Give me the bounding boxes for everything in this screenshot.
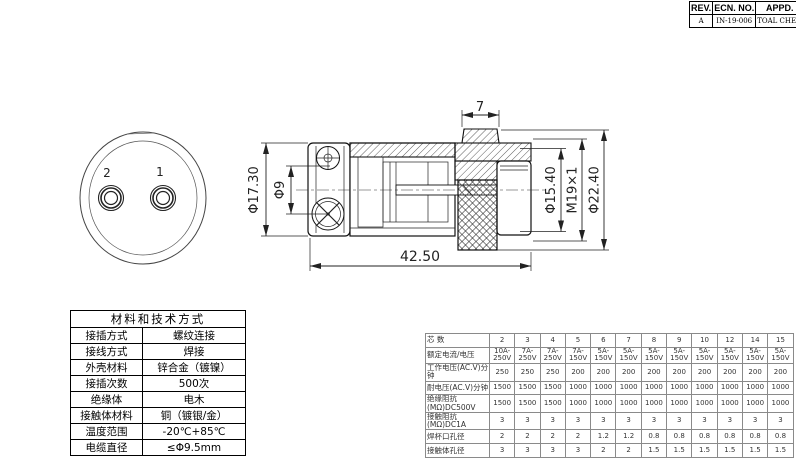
svg-text:7: 7 [476,100,484,115]
spec-row: 工作电压(AC.V)分钟2502502502002002002002002002… [426,364,794,382]
spec-row-label: 芯 数 [426,334,490,348]
spec-value: 200 [591,364,616,382]
spec-value: 12 [717,334,742,348]
spec-value: 1500 [540,381,565,395]
spec-value: 3 [692,412,717,430]
spec-value: 0.8 [667,430,692,444]
pin-1 [151,186,176,211]
spec-row: 绝缘阻抗(MΩ)DC500V15001500150010001000100010… [426,395,794,413]
spec-value: 1000 [717,381,742,395]
spec-value: 1000 [616,395,641,413]
revision-header-row: REV. ECN. NO. APPD. [690,2,796,15]
spec-row: 耐电压(AC.V)分钟15001500150010001000100010001… [426,381,794,395]
spec-value: 2 [540,430,565,444]
dim-tab-width: 7 [462,100,499,127]
spec-value: 0.8 [717,430,742,444]
materials-table: 材料和技术方式 接插方式螺纹连接接线方式焊接外壳材料锌合金（镀镍）接插次数500… [70,310,246,456]
spec-value: 8 [641,334,666,348]
spec-value: 1000 [616,381,641,395]
svg-text:Φ17.30: Φ17.30 [247,166,262,213]
spec-value: 7A-150V [565,347,590,363]
spec-value: 200 [692,364,717,382]
spec-value: 1000 [641,381,666,395]
spec-value: 250 [490,364,515,382]
spec-value: 1.2 [591,430,616,444]
materials-property-value: -20℃+85℃ [143,424,246,440]
materials-property-label: 电缆直径 [71,440,143,456]
spec-value: 1000 [692,381,717,395]
spec-value: 4 [540,334,565,348]
spec-row: 接触阻抗(MΩ)DC1A333333333333 [426,412,794,430]
materials-row: 电缆直径≤Φ9.5mm [71,440,246,456]
spec-value: 3 [540,444,565,458]
spec-value: 3 [565,412,590,430]
spec-value: 1.5 [742,444,767,458]
spec-value: 1.5 [717,444,742,458]
pin-2-label: 2 [103,166,111,180]
spec-value: 5A-150V [768,347,793,363]
svg-text:Φ15.40: Φ15.40 [544,166,559,213]
spec-value: 3 [565,444,590,458]
spec-value: 200 [641,364,666,382]
front-inner-shell [89,141,197,255]
spec-value: 3 [616,412,641,430]
spec-value: 0.8 [768,430,793,444]
spec-row-label: 绝缘阻抗(MΩ)DC500V [426,395,490,413]
materials-property-value: 螺纹连接 [143,328,246,344]
spec-row-label: 耐电压(AC.V)分钟 [426,381,490,395]
spec-value: 1500 [490,395,515,413]
spec-value: 0.8 [742,430,767,444]
materials-property-label: 接线方式 [71,344,143,360]
spec-value: 2 [515,430,540,444]
spec-value: 1000 [768,395,793,413]
spec-value: 3 [515,444,540,458]
pin-1-label: 1 [156,165,164,179]
spec-value: 3 [540,412,565,430]
spec-table: 芯 数2345678910121415额定电流/电压10A-250V7A-250… [425,333,794,458]
spec-value: 6 [591,334,616,348]
svg-text:42.50: 42.50 [400,249,440,265]
spec-value: 1000 [667,381,692,395]
ecn-no-value: IN-19-006 [713,15,756,28]
spec-value: 2 [490,430,515,444]
materials-property-label: 温度范围 [71,424,143,440]
spec-value: 5A-150V [742,347,767,363]
spec-value: 3 [515,412,540,430]
drawing-canvas: REV. ECN. NO. APPD. A IN-19-006 TOAL CHE… [0,0,796,460]
spec-value: 3 [515,334,540,348]
spec-value: 1500 [515,395,540,413]
spec-value: 200 [768,364,793,382]
materials-property-label: 绝缘体 [71,392,143,408]
spec-value: 3 [768,412,793,430]
materials-row: 绝缘体电木 [71,392,246,408]
spec-value: 15 [768,334,793,348]
spec-value: 3 [490,444,515,458]
spec-value: 3 [717,412,742,430]
spec-value: 3 [641,412,666,430]
spec-row-label: 工作电压(AC.V)分钟 [426,364,490,382]
spec-value: 1000 [641,395,666,413]
materials-property-value: 500次 [143,376,246,392]
materials-property-value: 锌合金（镀镍） [143,360,246,376]
spec-value: 1000 [768,381,793,395]
spec-value: 1.5 [692,444,717,458]
side-view-drawing: Φ17.30 Φ9 Φ15.40 M19×1 Φ22.4 [235,85,615,280]
spec-row: 芯 数2345678910121415 [426,334,794,348]
spec-value: 3 [591,412,616,430]
spec-value: 1.5 [667,444,692,458]
spec-value: 1000 [717,395,742,413]
materials-property-label: 接触体材料 [71,408,143,424]
spec-value: 5A-150V [667,347,692,363]
spec-row-label: 接触阻抗(MΩ)DC1A [426,412,490,430]
spec-value: 3 [490,412,515,430]
spec-value: 5A-150V [616,347,641,363]
spec-value: 5A-150V [717,347,742,363]
spec-value: 1.2 [616,430,641,444]
spec-value: 200 [742,364,767,382]
rev-header: REV. [690,2,713,15]
spec-value: 200 [616,364,641,382]
materials-row: 外壳材料锌合金（镀镍） [71,360,246,376]
spec-row: 接触体孔径3333221.51.51.51.51.51.5 [426,444,794,458]
materials-property-label: 接插方式 [71,328,143,344]
materials-property-label: 接插次数 [71,376,143,392]
spec-value: 250 [540,364,565,382]
spec-value: 5 [565,334,590,348]
ecn-no-header: ECN. NO. [713,2,756,15]
spec-value: 1000 [591,381,616,395]
materials-title-row: 材料和技术方式 [71,311,246,328]
spec-row: 焊杯口孔径22221.21.20.80.80.80.80.80.8 [426,430,794,444]
spec-value: 1000 [591,395,616,413]
appd-value: TOAL CHEN [756,15,796,28]
spec-value: 0.8 [641,430,666,444]
spec-value: 1000 [565,381,590,395]
revision-data-row: A IN-19-006 TOAL CHEN [690,15,796,28]
spec-value: 10A-250V [490,347,515,363]
svg-text:Φ22.40: Φ22.40 [588,166,603,213]
spec-value: 200 [717,364,742,382]
revision-table: REV. ECN. NO. APPD. A IN-19-006 TOAL CHE… [689,1,796,28]
spec-value: 1500 [540,395,565,413]
spec-value: 1000 [692,395,717,413]
spec-value: 9 [667,334,692,348]
spec-value: 1500 [490,381,515,395]
materials-row: 接插方式螺纹连接 [71,328,246,344]
spec-value: 7A-250V [540,347,565,363]
materials-row: 接线方式焊接 [71,344,246,360]
spec-value: 1500 [515,381,540,395]
spec-value: 2 [565,430,590,444]
materials-property-label: 外壳材料 [71,360,143,376]
front-view-drawing: 2 1 [55,118,240,283]
rev-value: A [690,15,713,28]
materials-property-value: 铜（镀银/金） [143,408,246,424]
spec-value: 1.5 [768,444,793,458]
materials-property-value: ≤Φ9.5mm [143,440,246,456]
spec-value: 2 [616,444,641,458]
materials-row: 温度范围-20℃+85℃ [71,424,246,440]
spec-row-label: 焊杯口孔径 [426,430,490,444]
spec-value: 200 [565,364,590,382]
spec-value: 1000 [742,395,767,413]
spec-value: 5A-150V [591,347,616,363]
spec-value: 2 [490,334,515,348]
spec-table-body: 芯 数2345678910121415额定电流/电压10A-250V7A-250… [426,334,794,458]
spec-value: 10 [692,334,717,348]
spec-value: 1.5 [641,444,666,458]
spec-row-label: 额定电流/电压 [426,347,490,363]
spec-value: 14 [742,334,767,348]
materials-property-value: 电木 [143,392,246,408]
spec-value: 1000 [565,395,590,413]
spec-value: 1000 [667,395,692,413]
dim-overall-length: 42.50 [310,238,531,271]
svg-text:M19×1: M19×1 [566,167,581,214]
spec-row: 额定电流/电压10A-250V7A-250V7A-250V7A-150V5A-1… [426,347,794,363]
spec-value: 3 [742,412,767,430]
appd-header: APPD. [756,2,796,15]
spec-value: 2 [591,444,616,458]
spec-value: 5A-150V [692,347,717,363]
spec-value: 200 [667,364,692,382]
spec-value: 0.8 [692,430,717,444]
materials-row: 接触体材料铜（镀银/金） [71,408,246,424]
materials-row: 接插次数500次 [71,376,246,392]
spec-value: 7A-250V [515,347,540,363]
materials-table-title: 材料和技术方式 [71,311,246,328]
svg-text:Φ9: Φ9 [273,181,288,200]
knurled-grip [458,180,497,250]
spec-value: 1000 [742,381,767,395]
spec-value: 3 [667,412,692,430]
pin-2 [99,186,124,211]
spec-row-label: 接触体孔径 [426,444,490,458]
dim-thread: M19×1 [533,139,587,241]
materials-table-body: 接插方式螺纹连接接线方式焊接外壳材料锌合金（镀镍）接插次数500次绝缘体电木接触… [71,328,246,456]
spec-value: 250 [515,364,540,382]
spec-value: 7 [616,334,641,348]
spec-value: 5A-150V [641,347,666,363]
materials-property-value: 焊接 [143,344,246,360]
